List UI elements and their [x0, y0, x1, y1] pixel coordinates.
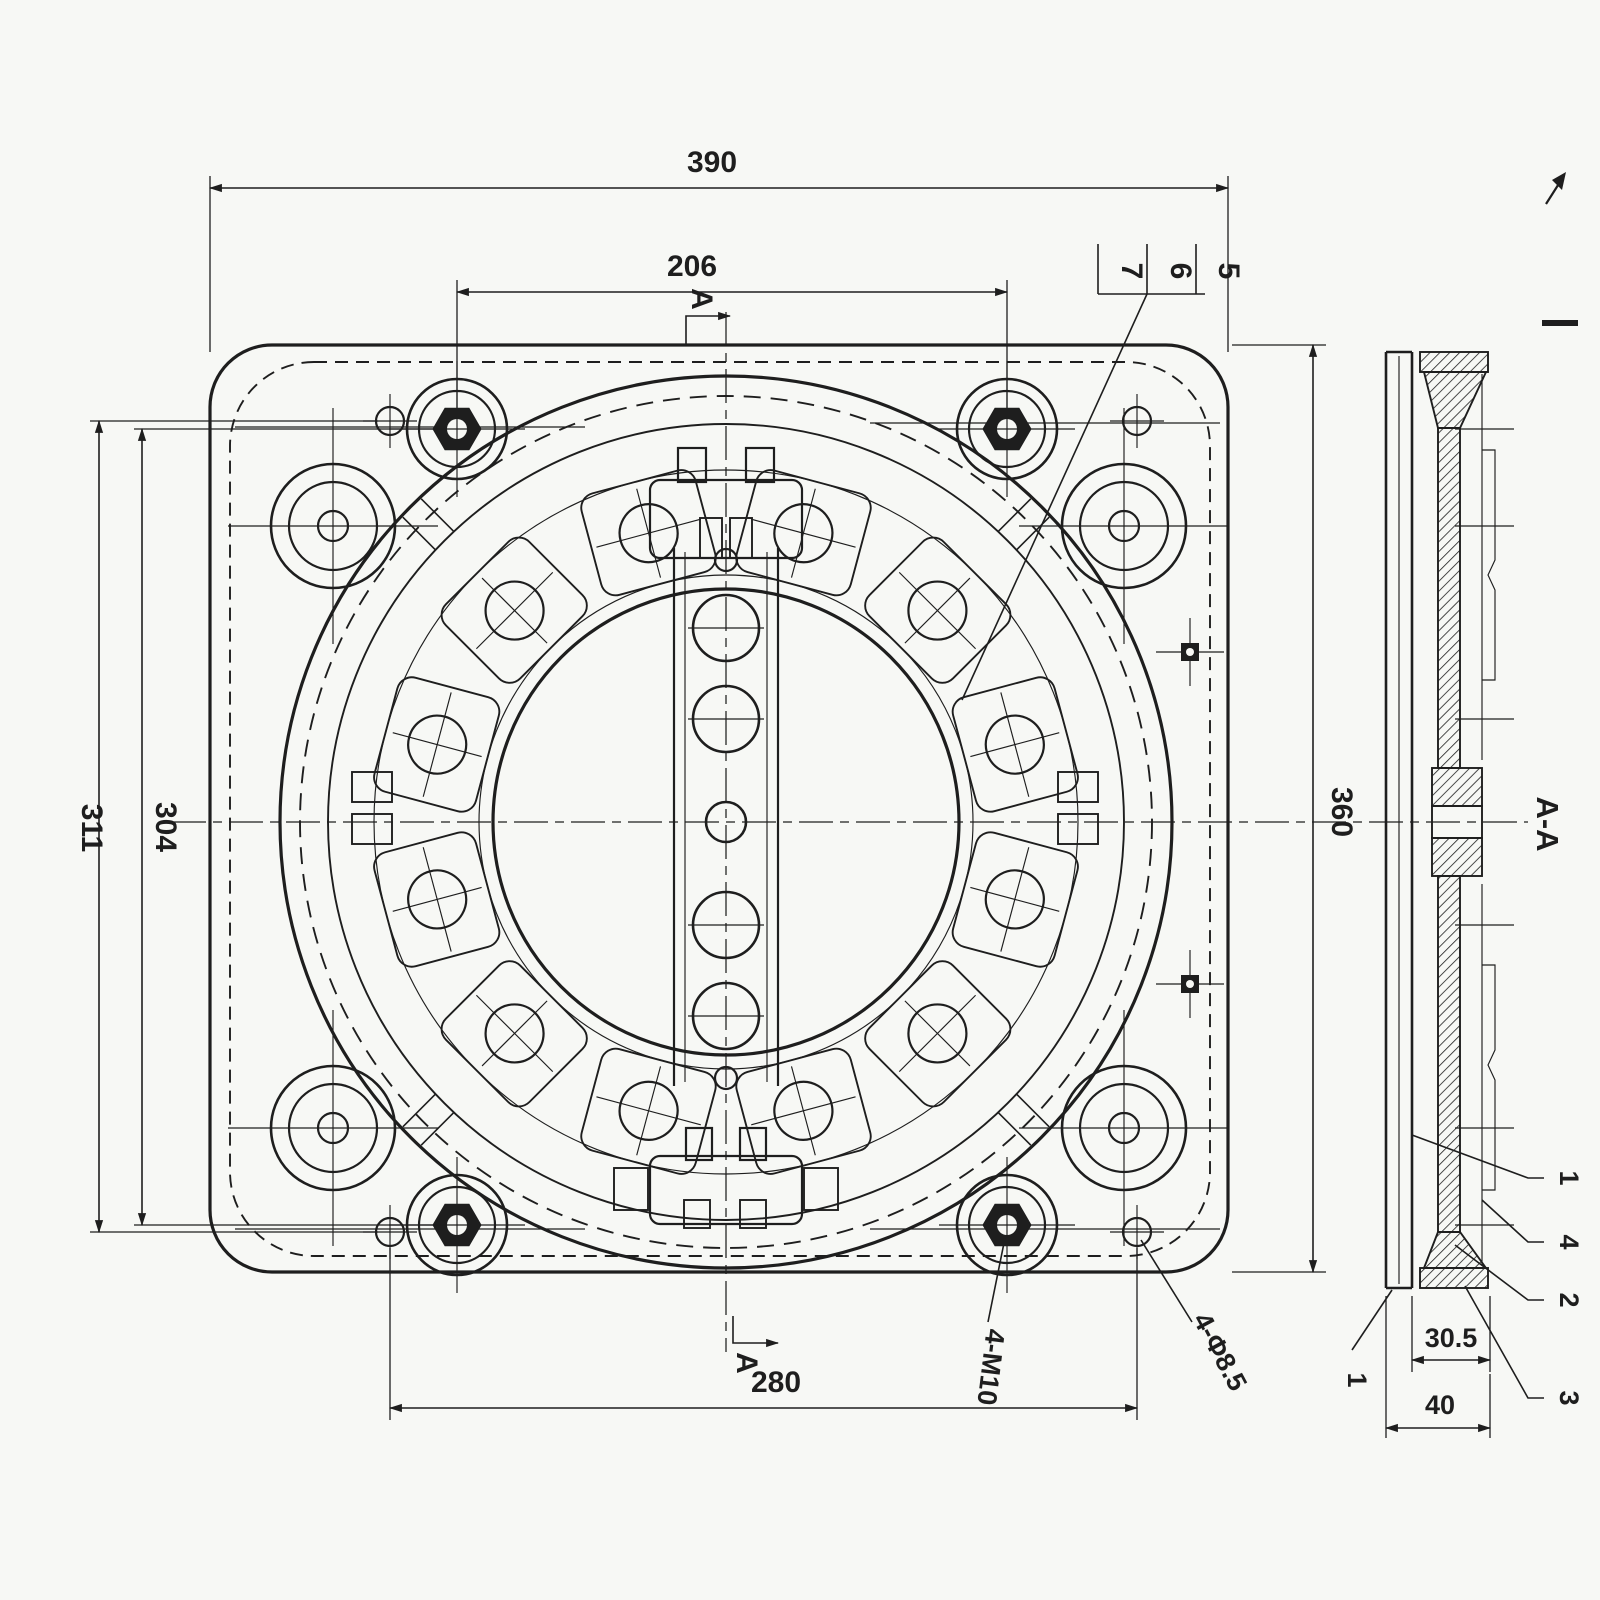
part-number-4: 4 [1554, 1234, 1584, 1249]
section-letter-bottom: A [730, 1352, 763, 1374]
dim-206: 206 [457, 250, 1007, 412]
dim-311-label: 311 [75, 804, 108, 852]
side-pins [1156, 618, 1224, 1018]
front-view [172, 312, 1528, 1352]
part-number-6: 6 [1164, 263, 1197, 280]
dim-40-label: 40 [1425, 1390, 1455, 1420]
section-letter-top: A [685, 288, 718, 310]
cutting-plane-marks [1542, 172, 1578, 323]
dim-390: 390 [210, 146, 1228, 352]
callout-4-dia85-label: 4-Φ8.5 [1187, 1308, 1253, 1396]
part-number-5: 5 [1212, 263, 1245, 280]
section-title: A-A [1530, 796, 1565, 851]
part-number-7: 7 [1115, 263, 1148, 280]
plate-outline [210, 345, 1228, 1272]
part-number-3: 3 [1554, 1390, 1584, 1405]
centerlines [172, 312, 1528, 1352]
technical-drawing: 390 206 311 304 360 [0, 0, 1600, 1600]
drawing-sheet: 390 206 311 304 360 [0, 0, 1600, 1600]
part-number-1: 1 [1554, 1170, 1584, 1185]
dim-360-label: 360 [1325, 787, 1358, 837]
dim-304-label: 304 [149, 802, 182, 852]
dimensions: 390 206 311 304 360 [75, 146, 1490, 1438]
part-number-2: 2 [1554, 1292, 1584, 1307]
section-cut-marker-top: A [685, 288, 730, 345]
dim-206-label: 206 [667, 250, 717, 283]
dim-30-5: 30.5 [1412, 1296, 1490, 1372]
upper-plate-section [1420, 352, 1495, 1288]
section-row-ticks [1455, 429, 1514, 1225]
dim-360: 360 [1232, 345, 1358, 1272]
dim-30-5-label: 30.5 [1425, 1323, 1478, 1353]
callout-4-m10-label: 4-M10 [971, 1327, 1010, 1407]
corner-washer-holes [228, 408, 1229, 1246]
section-view: A-A 1 4 2 3 1 [1342, 172, 1584, 1406]
base-plate-section [1386, 352, 1412, 1288]
dim-280: 280 [390, 1248, 1137, 1420]
dia85-holes [363, 394, 1164, 1259]
dim-390-label: 390 [687, 146, 737, 179]
dim-40: 40 [1386, 1296, 1490, 1438]
part-number-1-lower-left: 1 [1342, 1372, 1372, 1387]
